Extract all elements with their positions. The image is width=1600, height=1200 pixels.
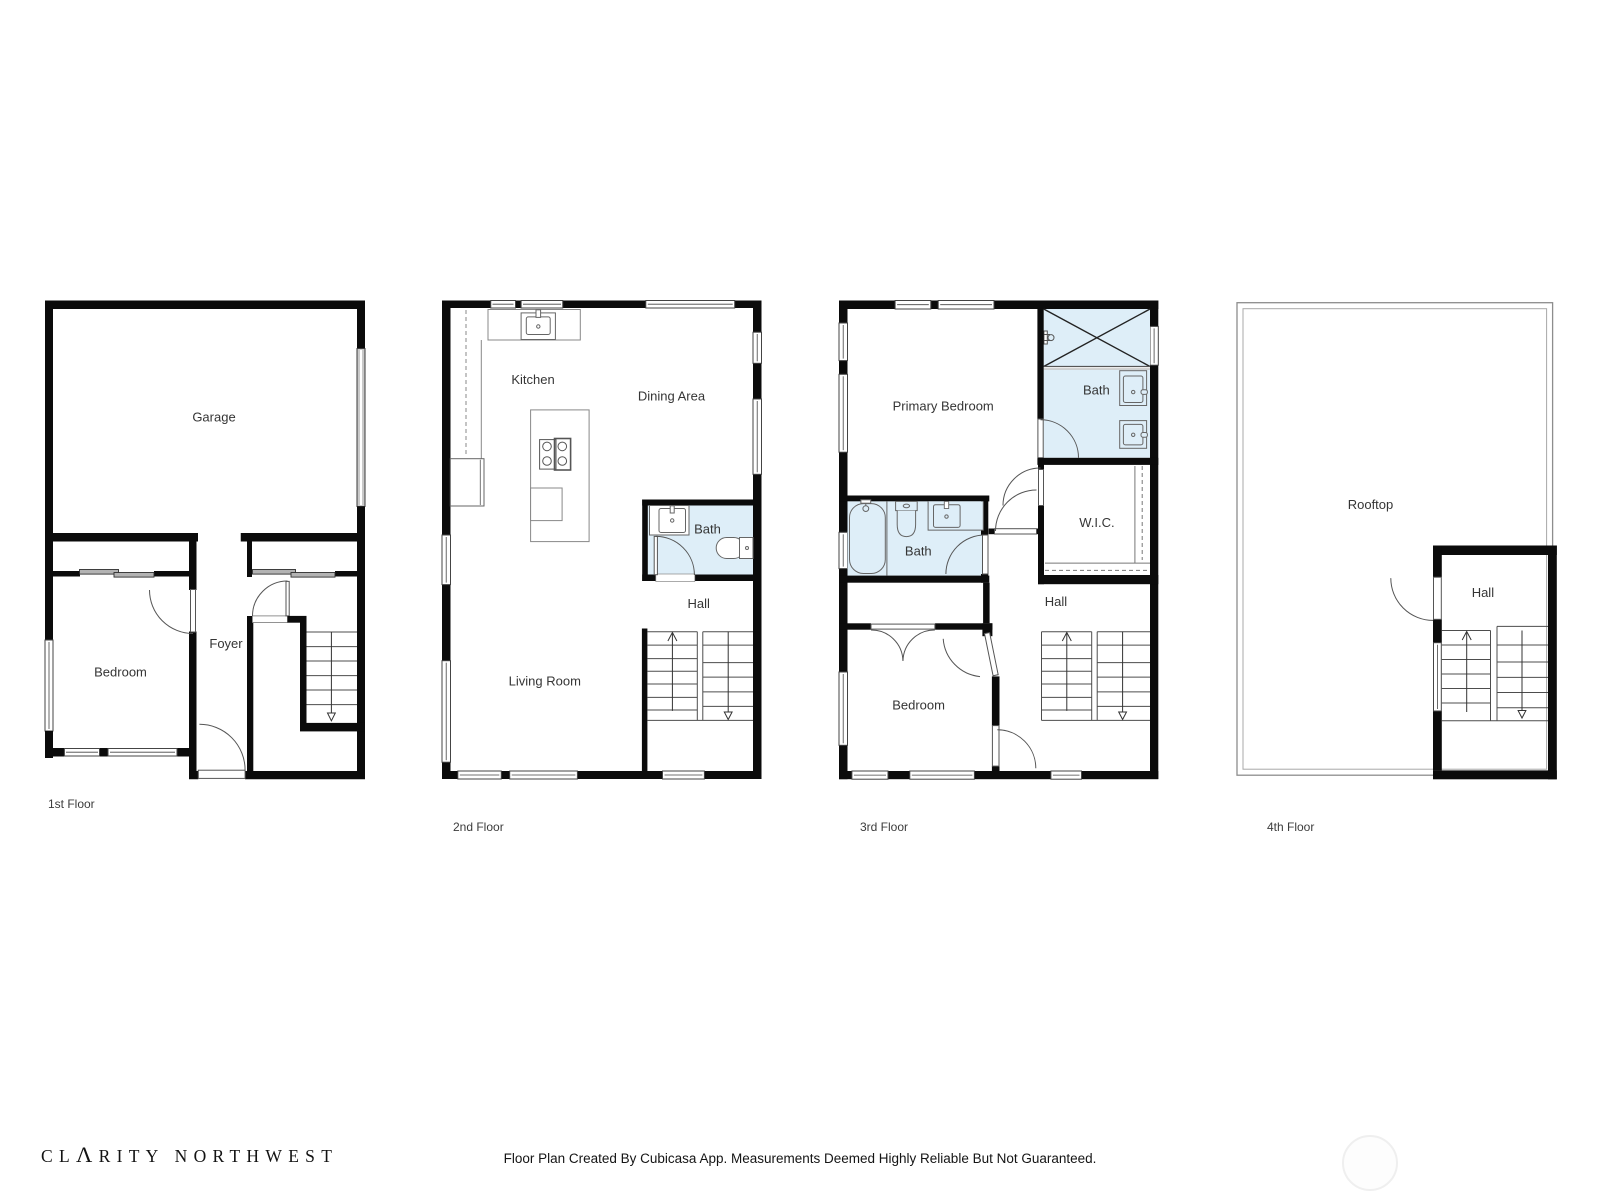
svg-text:4th Floor: 4th Floor — [1267, 820, 1314, 834]
svg-text:Bath: Bath — [905, 544, 932, 559]
svg-text:Hall: Hall — [687, 596, 710, 611]
svg-text:Bedroom: Bedroom — [892, 697, 945, 712]
svg-text:Living Room: Living Room — [509, 674, 581, 689]
svg-text:Rooftop: Rooftop — [1348, 497, 1394, 512]
svg-text:Foyer: Foyer — [209, 636, 243, 651]
svg-text:3rd Floor: 3rd Floor — [860, 820, 908, 834]
svg-text:Kitchen: Kitchen — [511, 372, 554, 387]
svg-text:Hall: Hall — [1045, 594, 1068, 609]
svg-text:Hall: Hall — [1472, 585, 1495, 600]
svg-text:2nd Floor: 2nd Floor — [453, 820, 504, 834]
svg-text:Floor Plan Created By Cubicasa: Floor Plan Created By Cubicasa App. Meas… — [504, 1151, 1097, 1166]
svg-text:Bedroom: Bedroom — [94, 665, 147, 680]
svg-text:Dining Area: Dining Area — [638, 389, 706, 404]
svg-text:1st Floor: 1st Floor — [48, 797, 95, 811]
svg-text:CLΛRITY NORTHWEST: CLΛRITY NORTHWEST — [41, 1142, 338, 1167]
svg-text:W.I.C.: W.I.C. — [1079, 515, 1114, 530]
svg-text:Bath: Bath — [1083, 382, 1110, 397]
svg-text:Primary Bedroom: Primary Bedroom — [893, 399, 994, 414]
svg-text:Bath: Bath — [694, 522, 721, 537]
svg-text:Garage: Garage — [192, 410, 235, 425]
